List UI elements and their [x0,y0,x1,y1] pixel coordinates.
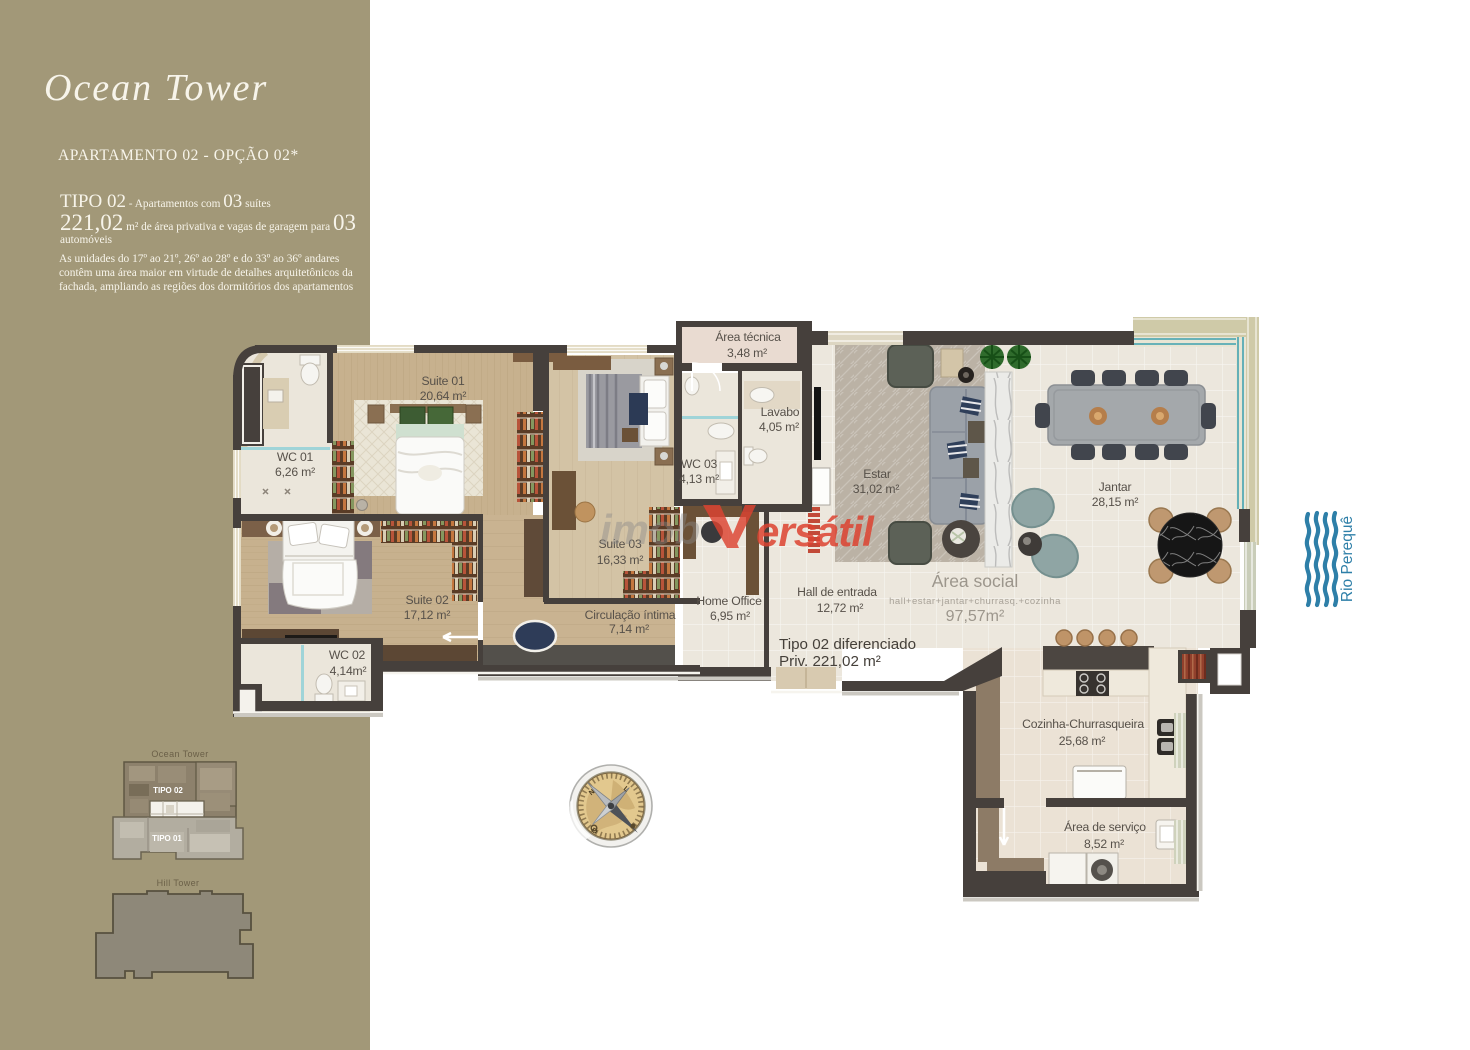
svg-text:97,57m²: 97,57m² [946,608,1005,625]
svg-text:fachada, ampliando as regiões: fachada, ampliando as regiões dos dormit… [59,281,354,293]
svg-text:Cozinha-Churrasqueira: Cozinha-Churrasqueira [1022,717,1144,731]
svg-text:17,12 m²: 17,12 m² [404,608,451,622]
svg-text:Ocean Tower: Ocean Tower [44,67,268,109]
svg-text:Tipo 02 diferenciado: Tipo 02 diferenciado [779,636,916,653]
svg-text:As unidades do 17º ao 21º, 26º: As unidades do 17º ao 21º, 26º ao 28º e … [59,253,340,265]
svg-text:Priv. 221,02 m²: Priv. 221,02 m² [779,653,881,670]
svg-text:Área social: Área social [932,571,1019,591]
svg-text:28,15 m²: 28,15 m² [1092,495,1139,509]
svg-text:TIPO 01: TIPO 01 [152,834,182,843]
svg-text:4,14m²: 4,14m² [330,664,367,678]
svg-text:APARTAMENTO 02 - OPÇÃO 02*: APARTAMENTO 02 - OPÇÃO 02* [58,147,299,164]
svg-text:WC 01: WC 01 [277,450,314,464]
svg-text:4,05 m²: 4,05 m² [759,420,799,434]
svg-text:6,26 m²: 6,26 m² [275,465,315,479]
svg-text:ersátil: ersátil [756,508,875,555]
svg-text:Suite 01: Suite 01 [421,374,465,388]
svg-text:Estar: Estar [863,467,891,481]
svg-text:25,68 m²: 25,68 m² [1059,734,1106,748]
svg-text:Área de serviço: Área de serviço [1064,819,1146,834]
svg-text:imob: imob [600,506,700,553]
svg-text:automóveis: automóveis [60,234,112,246]
svg-text:3,48 m²: 3,48 m² [727,346,767,360]
svg-text:contêm uma área maior em virtu: contêm uma área maior em virtude de deta… [59,267,353,279]
svg-text:Jantar: Jantar [1099,480,1132,494]
svg-text:4,13 m²: 4,13 m² [679,472,719,486]
svg-text:Hall de entrada: Hall de entrada [797,585,877,599]
svg-text:Ocean Tower: Ocean Tower [151,749,208,759]
svg-text:hall+estar+jantar+churrasq.+co: hall+estar+jantar+churrasq.+cozinha [889,596,1061,607]
svg-text:Lavabo: Lavabo [761,405,800,419]
svg-text:Suite 02: Suite 02 [405,593,449,607]
svg-text:Rio Perequê: Rio Perequê [1339,516,1356,602]
svg-text:31,02 m²: 31,02 m² [853,482,900,496]
svg-text:TIPO 02: TIPO 02 [153,786,183,795]
svg-text:Área técnica: Área técnica [715,329,781,344]
svg-text:8,52 m²: 8,52 m² [1084,837,1124,851]
svg-text:12,72 m²: 12,72 m² [817,601,864,615]
svg-text:WC 03: WC 03 [681,457,718,471]
svg-text:Circulação íntima: Circulação íntima [585,608,676,622]
svg-text:WC 02: WC 02 [329,648,366,662]
svg-text:6,95 m²: 6,95 m² [710,609,750,623]
svg-text:7,14 m²: 7,14 m² [609,622,649,636]
svg-text:Home Office: Home Office [696,594,762,608]
svg-text:Hill Tower: Hill Tower [157,878,200,888]
svg-text:20,64 m²: 20,64 m² [420,389,467,403]
svg-text:16,33 m²: 16,33 m² [597,553,644,567]
